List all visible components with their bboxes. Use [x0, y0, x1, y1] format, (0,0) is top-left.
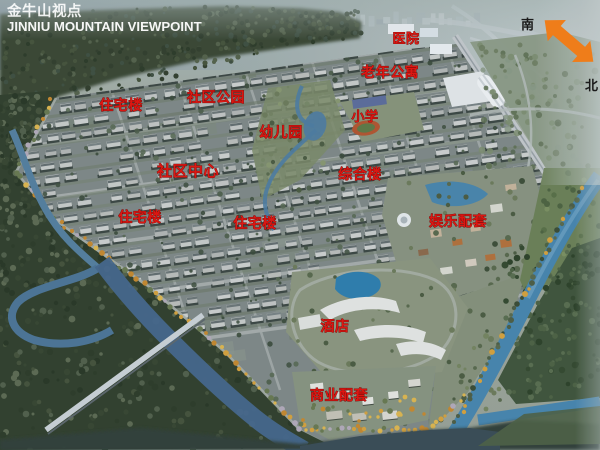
svg-text:住宅楼: 住宅楼: [233, 215, 277, 231]
svg-text:社区中心: 社区中心: [156, 162, 219, 180]
svg-text:幼儿园: 幼儿园: [259, 124, 303, 140]
svg-text:北: 北: [585, 78, 598, 93]
svg-text:商业配套: 商业配套: [310, 387, 368, 403]
svg-text:酒店: 酒店: [321, 318, 350, 334]
svg-text:老年公寓: 老年公寓: [361, 64, 419, 80]
svg-text:综合楼: 综合楼: [338, 166, 382, 182]
svg-text:JINNIU MOUNTAIN VIEWPOINT: JINNIU MOUNTAIN VIEWPOINT: [7, 19, 202, 34]
svg-text:住宅楼: 住宅楼: [118, 209, 162, 225]
svg-text:社区公园: 社区公园: [186, 89, 245, 105]
svg-text:娱乐配套: 娱乐配套: [429, 213, 487, 229]
svg-text:医院: 医院: [392, 31, 419, 46]
svg-text:金牛山视点: 金牛山视点: [6, 2, 82, 20]
svg-text:小学: 小学: [351, 109, 378, 124]
svg-text:南: 南: [521, 17, 534, 32]
svg-text:住宅楼: 住宅楼: [99, 97, 143, 113]
